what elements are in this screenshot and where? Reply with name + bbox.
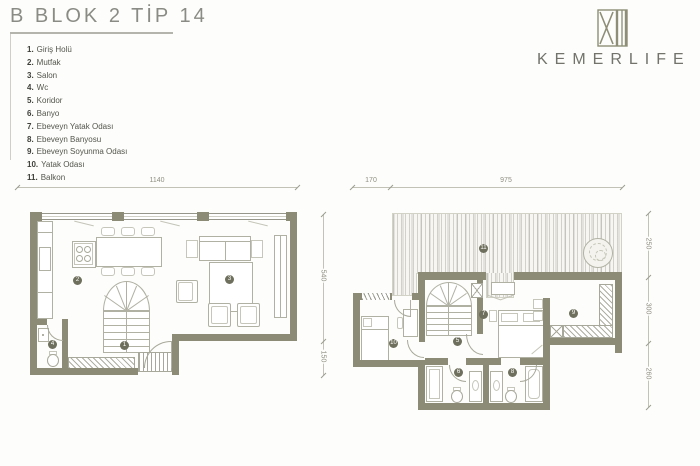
floor-plan-sheet: B BLOK 2 TİP 14 1.Giriş Holü 2.Mutfak 3.… — [0, 0, 700, 466]
wall — [418, 280, 425, 300]
dining-table — [96, 237, 162, 267]
wall — [483, 365, 489, 410]
wall — [543, 298, 550, 410]
room-badge-yatak-odasi: 10 — [389, 339, 398, 348]
wall — [290, 213, 297, 341]
dimension-label: 250 — [644, 237, 651, 251]
stove-burner — [84, 246, 91, 253]
dimension-tick — [646, 405, 652, 411]
chair — [101, 227, 115, 236]
room-badge-wc: 4 — [48, 340, 57, 349]
armchair-cushion — [240, 306, 257, 324]
legend-item: 1.Giriş Holü — [27, 44, 127, 57]
legend-item: 4.Wc — [27, 82, 127, 95]
window-opening-mark — [160, 221, 180, 227]
pillow — [363, 318, 372, 327]
room-badge-salon: 3 — [225, 275, 234, 284]
dimension-line — [17, 187, 297, 188]
room-badge-banyo: 6 — [454, 368, 463, 377]
page-title: B BLOK 2 TİP 14 — [10, 5, 208, 28]
wall — [353, 360, 425, 367]
legend-item: 6.Banyo — [27, 108, 127, 121]
sofa-cushion-divider — [225, 241, 226, 260]
wall-column — [112, 212, 124, 221]
toilet — [451, 390, 463, 403]
legend-item: 5.Koridor — [27, 95, 127, 108]
door-arc — [407, 340, 424, 358]
side-table — [251, 240, 263, 258]
door-arc — [47, 325, 63, 341]
chair — [141, 227, 155, 236]
tv-unit-line — [280, 236, 281, 317]
chair — [121, 227, 135, 236]
legend-item: 8.Ebeveyn Banyosu — [27, 134, 127, 147]
armchair-cushion — [211, 306, 228, 324]
wall — [172, 334, 179, 375]
room-badge-balkon: 11 — [479, 244, 488, 253]
stove-burner — [84, 255, 91, 262]
dimension-line — [352, 187, 622, 188]
window-opening-mark — [248, 221, 268, 227]
stairs-divider — [448, 282, 449, 336]
wall — [514, 272, 622, 280]
counter-divider — [38, 292, 52, 293]
stairs-treads — [426, 306, 472, 336]
dimension-label: 300 — [644, 302, 651, 316]
dimension-label: 540 — [319, 269, 326, 283]
tree-inner-ring — [595, 250, 606, 261]
wall — [418, 272, 486, 280]
room-badge-mutfak: 2 — [73, 276, 82, 285]
armchair-cushion — [178, 282, 193, 301]
bench — [533, 299, 543, 309]
room-badge-ebeveyn-banyo: 8 — [508, 368, 517, 377]
legend-item: 3.Salon — [27, 70, 127, 83]
wall — [30, 213, 37, 375]
toilet — [505, 390, 517, 403]
legend-item: 2.Mutfak — [27, 57, 127, 70]
legend-item: 10.Yatak Odası — [27, 159, 127, 172]
dimension-label: 1140 — [127, 177, 187, 184]
dimension-label: 170 — [356, 177, 386, 184]
nightstand — [489, 310, 497, 322]
wall — [466, 358, 501, 365]
wall — [543, 338, 622, 345]
kemerlife-xii-logo-icon — [597, 9, 628, 47]
sink-basin — [472, 380, 479, 391]
pillow — [501, 313, 518, 322]
room-badge-soyunma: 9 — [569, 309, 578, 318]
wall — [172, 334, 297, 341]
door-arc — [466, 334, 483, 355]
room-badge-giris-holu: 1 — [120, 341, 129, 350]
counter-divider — [38, 232, 52, 233]
chair — [141, 267, 155, 276]
shower-tray — [429, 369, 440, 399]
tree — [583, 238, 613, 268]
room-badge-ebeveyn-yatak: 7 — [479, 310, 488, 319]
stove-burner — [76, 255, 83, 262]
legend-item: 9.Ebeveyn Soyunma Odası — [27, 146, 127, 159]
wall — [419, 300, 425, 342]
legend-item: 11.Balkon — [27, 172, 127, 185]
kemerlife-logo-text: KEMERLIFE — [537, 51, 691, 69]
door-arc — [394, 300, 411, 317]
dimension-label: 260 — [644, 367, 651, 381]
desk-chair — [397, 317, 403, 329]
chair — [121, 267, 135, 276]
room-legend: 1.Giriş Holü 2.Mutfak 3.Salon 4.Wc 5.Kor… — [27, 44, 127, 185]
window — [362, 293, 390, 300]
dimension-label: 150 — [319, 350, 326, 364]
window-opening-mark — [74, 221, 94, 227]
wall — [520, 358, 550, 365]
bench — [533, 311, 543, 321]
wall — [353, 293, 360, 367]
wardrobe — [563, 325, 613, 338]
side-table — [186, 240, 198, 258]
toilet — [47, 354, 59, 367]
duct-shaft — [471, 283, 483, 298]
wall-column — [197, 212, 209, 221]
fridge — [39, 247, 51, 271]
window — [30, 213, 297, 220]
legend-item: 7.Ebeveyn Yatak Odası — [27, 121, 127, 134]
dresser — [491, 282, 515, 295]
sink-drain-dot — [42, 334, 44, 336]
dimension-tick — [321, 373, 327, 379]
dimension-label: 975 — [476, 177, 536, 184]
title-underline — [10, 32, 173, 34]
bed-line — [498, 325, 544, 326]
bed-line — [361, 329, 389, 330]
wall — [30, 319, 47, 325]
legend-left-rule — [10, 34, 11, 160]
sink-basin — [493, 380, 500, 391]
dimension-tick — [620, 185, 626, 191]
wall — [425, 358, 448, 365]
dimension-tick — [295, 185, 301, 191]
stove-burner — [76, 246, 83, 253]
wall — [30, 368, 138, 375]
chair — [101, 267, 115, 276]
wardrobe-corner — [550, 325, 563, 338]
room-badge-koridor: 5 — [453, 337, 462, 346]
